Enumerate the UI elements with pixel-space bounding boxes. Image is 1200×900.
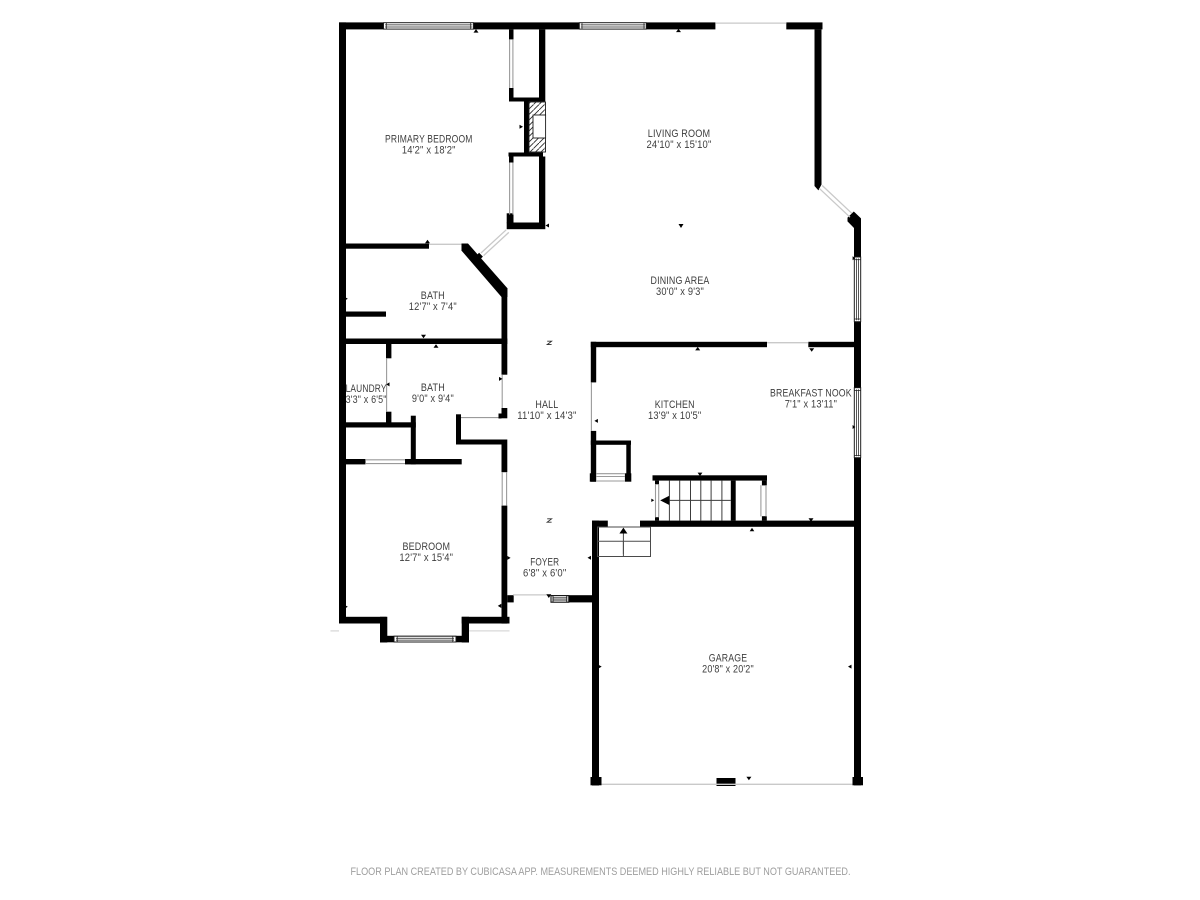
svg-text:11'10" x 14'3": 11'10" x 14'3" xyxy=(517,410,576,422)
svg-text:12'7" x 15'4": 12'7" x 15'4" xyxy=(399,552,453,564)
svg-text:9'0" x 9'4": 9'0" x 9'4" xyxy=(412,393,454,405)
svg-text:30'0" x 9'3": 30'0" x 9'3" xyxy=(656,286,704,298)
svg-text:13'9" x 10'5": 13'9" x 10'5" xyxy=(648,410,701,422)
svg-text:PRIMARY BEDROOM: PRIMARY BEDROOM xyxy=(385,133,473,145)
svg-text:24'10" x 15'10": 24'10" x 15'10" xyxy=(647,139,712,151)
svg-text:20'8" x 20'2": 20'8" x 20'2" xyxy=(702,664,754,676)
svg-text:7'1" x 13'11": 7'1" x 13'11" xyxy=(785,399,837,411)
svg-text:3'3" x 6'5": 3'3" x 6'5" xyxy=(346,394,387,406)
svg-text:14'2" x 18'2": 14'2" x 18'2" xyxy=(402,145,456,157)
svg-text:6'8" x 6'0": 6'8" x 6'0" xyxy=(523,568,566,580)
svg-text:FLOOR PLAN CREATED BY CUBICASA: FLOOR PLAN CREATED BY CUBICASA APP. MEAS… xyxy=(351,866,851,878)
svg-text:12'7" x 7'4": 12'7" x 7'4" xyxy=(409,301,457,313)
